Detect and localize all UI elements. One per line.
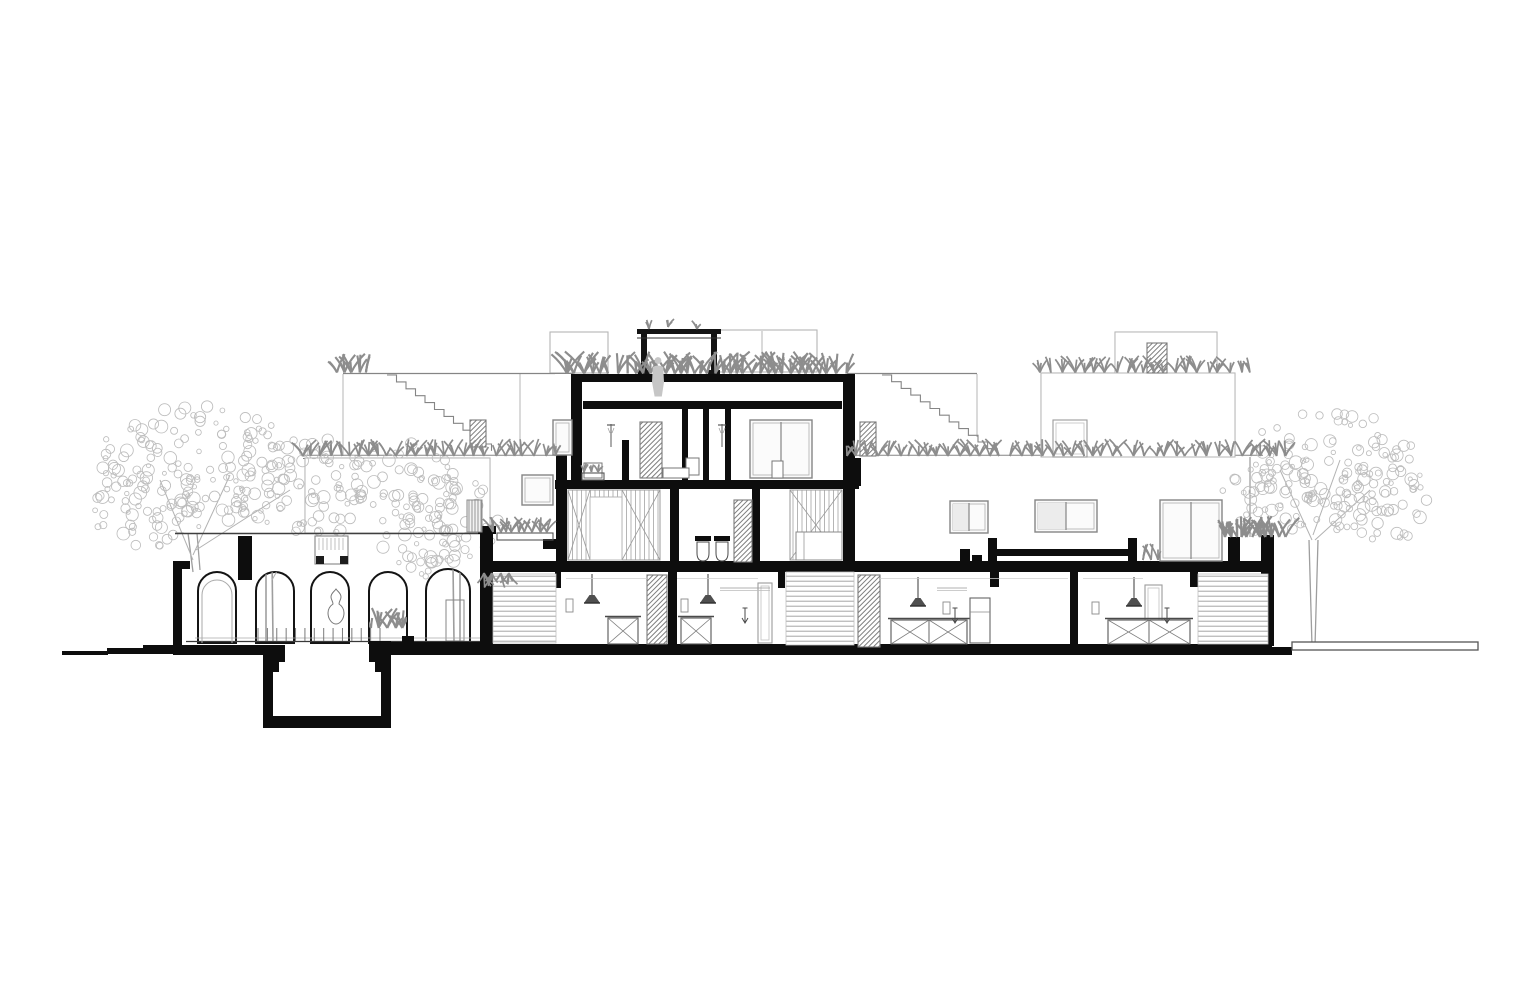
cabinet-fridge: [970, 598, 990, 643]
tree-trunk: [453, 565, 454, 641]
foliage-scribble: [264, 488, 274, 498]
foliage-scribble: [264, 431, 272, 439]
foliage-scribble: [244, 497, 248, 501]
ground-line: [143, 645, 176, 654]
foliage-scribble: [222, 514, 235, 527]
foliage-scribble: [121, 444, 134, 457]
foliage-scribble: [1348, 423, 1352, 427]
tree-trunk: [1309, 540, 1312, 646]
foliage-scribble: [196, 430, 202, 436]
foliage-scribble: [93, 508, 98, 513]
terrace-bench: [972, 555, 982, 565]
plant-leaf: [458, 446, 464, 456]
foliage-scribble: [1359, 420, 1367, 428]
arch-opening: [256, 572, 294, 643]
plant-row: [483, 517, 556, 532]
foliage-scribble: [1298, 410, 1307, 419]
foliage-scribble: [214, 421, 218, 425]
ground-line: [173, 645, 265, 655]
foliage-scribble: [1280, 513, 1291, 524]
foliage-scribble: [126, 509, 138, 521]
foliage-scribble: [1274, 425, 1281, 432]
foliage-scribble: [1289, 456, 1302, 469]
foliage-scribble: [168, 464, 176, 472]
foliage-scribble: [1259, 429, 1266, 436]
foliage-scribble: [1369, 414, 1378, 423]
foliage-scribble: [1331, 450, 1335, 454]
foliage-scribble: [148, 419, 158, 429]
plant-leaf: [760, 356, 761, 374]
sunken-patio-wall: [263, 662, 279, 672]
plant-leaf: [694, 323, 697, 329]
foliage-scribble: [155, 420, 168, 433]
plant-leaf: [380, 444, 387, 456]
hatched-door-panel: [734, 500, 752, 562]
foliage-scribble: [222, 451, 234, 463]
wardrobe-door-gap: [590, 497, 622, 560]
foliage-scribble: [1324, 435, 1336, 447]
ground-line: [62, 651, 108, 655]
ground-line: [385, 642, 482, 655]
foliage-scribble: [276, 463, 281, 468]
cut-wall: [714, 536, 730, 541]
foliage-scribble: [1413, 510, 1421, 518]
foliage-scribble: [176, 461, 182, 467]
cut-wall: [622, 440, 629, 481]
foliage-scribble: [174, 439, 183, 448]
foliage-scribble: [226, 473, 233, 480]
ground-line: [1266, 647, 1292, 655]
cut-wall: [173, 561, 190, 569]
foliage-scribble: [162, 471, 166, 475]
foliage-scribble: [257, 457, 267, 467]
foliage-scribble: [1383, 452, 1388, 457]
cut-wall: [990, 572, 999, 587]
foliage-scribble: [149, 533, 157, 541]
foliage-scribble: [1339, 501, 1350, 512]
foliage-scribble: [184, 463, 192, 471]
foliage-scribble: [1382, 504, 1394, 516]
cut-wall: [1228, 537, 1240, 572]
foliage-scribble: [249, 488, 261, 500]
foliage-scribble: [1340, 410, 1349, 419]
foliage-scribble: [197, 525, 201, 529]
foliage-scribble: [171, 427, 178, 434]
arch-opening: [198, 572, 236, 643]
cut-wall: [752, 489, 760, 562]
foliage-scribble: [1405, 455, 1413, 463]
foliage-scribble: [1358, 502, 1370, 514]
foliage-scribble: [1372, 443, 1380, 451]
foliage-scribble: [136, 424, 148, 436]
foliage-scribble: [160, 506, 166, 512]
terrace-bench: [960, 549, 970, 565]
foliage-scribble: [1387, 468, 1399, 480]
skylight-post: [316, 556, 324, 564]
foliage-scribble: [187, 492, 200, 505]
foliage-scribble: [102, 478, 112, 488]
cut-wall: [571, 374, 852, 382]
ground-plate-right: [1292, 642, 1478, 650]
foliage-scribble: [1418, 473, 1422, 477]
toilet: [716, 542, 728, 561]
architectural-section-drawing: [0, 0, 1536, 994]
terrace-bench: [1128, 538, 1137, 563]
building-mass: [305, 458, 490, 533]
foliage-scribble: [100, 511, 108, 519]
louver-screen: [1198, 574, 1268, 644]
foliage-scribble: [108, 497, 114, 503]
foliage-scribble: [262, 480, 274, 492]
plant-leaf: [425, 445, 427, 456]
foliage-scribble: [1366, 451, 1371, 456]
foliage-scribble: [207, 466, 214, 473]
foliage-scribble: [298, 484, 303, 489]
foliage-scribble: [147, 454, 155, 462]
foliage-scribble: [1316, 412, 1323, 419]
foliage-scribble: [240, 412, 250, 422]
foliage-scribble: [1390, 488, 1398, 496]
foliage-scribble: [1380, 486, 1391, 497]
plant-leaf: [331, 442, 338, 456]
foliage-scribble: [237, 469, 249, 481]
foliage-scribble: [1405, 473, 1418, 486]
plant-leaf: [1285, 441, 1286, 456]
foliage-scribble: [1398, 500, 1407, 509]
louvered-window: [467, 500, 482, 532]
building-mass: [1041, 373, 1235, 457]
cut-wall: [778, 572, 785, 588]
foliage-scribble: [1391, 527, 1403, 539]
foliage-scribble: [267, 461, 275, 469]
window-pane-tint: [1038, 503, 1066, 529]
foliage-scribble: [211, 477, 216, 482]
plant-leaf: [1022, 445, 1026, 456]
plant-row: [292, 439, 561, 456]
plant-leaf: [697, 324, 701, 329]
foliage-scribble: [201, 401, 212, 412]
foliage-scribble: [202, 495, 209, 502]
bath-fixture: [772, 461, 783, 478]
cut-wall: [480, 561, 1272, 572]
foliage-scribble: [1370, 467, 1383, 480]
foliage-scribble: [1345, 459, 1352, 466]
foliage-scribble: [224, 486, 230, 492]
foliage-scribble: [1281, 461, 1290, 470]
foliage-scribble: [159, 404, 171, 416]
foliage-scribble: [1329, 438, 1336, 445]
figure-body: [652, 366, 664, 397]
ground-line: [107, 648, 145, 654]
sunken-patio-wall: [263, 672, 273, 718]
foliage-scribble: [1374, 530, 1381, 537]
foliage-scribble: [226, 462, 236, 472]
foliage-scribble: [1392, 454, 1399, 461]
foliage-scribble: [195, 412, 206, 423]
foliage-scribble: [1332, 409, 1343, 420]
foliage-scribble: [297, 522, 301, 526]
plant-leaf: [369, 442, 370, 456]
plant-leaf: [1117, 361, 1118, 372]
pergola-beam: [637, 329, 721, 334]
sunken-patio-wall: [375, 662, 391, 672]
foliage-scribble: [197, 449, 202, 454]
plant-row: [551, 352, 854, 374]
foliage-scribble: [1334, 417, 1342, 425]
cut-wall: [555, 480, 859, 489]
plant-leaf: [351, 362, 352, 372]
figure-head: [655, 357, 662, 364]
foliage-scribble: [129, 420, 141, 432]
foliage-scribble: [1356, 514, 1367, 525]
foliage-scribble: [143, 477, 150, 484]
cut-wall: [703, 408, 709, 481]
plant-leaf: [1153, 364, 1154, 372]
cut-wall: [695, 536, 711, 541]
foliage-scribble: [253, 516, 257, 520]
bath-fixture: [663, 468, 689, 478]
cut-wall: [480, 528, 493, 650]
foliage-scribble: [143, 507, 151, 515]
foliage-scribble: [1289, 470, 1301, 482]
foliage-scribble: [121, 504, 130, 513]
foliage-scribble: [1369, 480, 1377, 488]
foliage-scribble: [282, 496, 292, 506]
plant-leaf: [1285, 444, 1294, 456]
hatched-door-panel: [640, 422, 662, 478]
foliage-scribble: [234, 479, 238, 483]
foliage-scribble: [164, 452, 177, 465]
sunken-patio-wall: [263, 716, 391, 728]
hatched-door-panel: [647, 575, 667, 644]
foliage-scribble: [97, 462, 109, 474]
planter-box: [497, 533, 553, 540]
arch-opening: [426, 569, 470, 643]
cut-wall: [173, 569, 182, 650]
foliage-scribble: [1377, 435, 1387, 445]
terrace-bench: [988, 538, 997, 563]
foliage-scribble: [104, 437, 109, 442]
foliage-scribble: [265, 520, 269, 524]
plant-leaf: [329, 362, 337, 373]
foliage-scribble: [268, 423, 274, 429]
foliage-scribble: [1325, 457, 1334, 466]
terrace-bench: [997, 549, 1128, 556]
plant-leaf: [1223, 364, 1230, 373]
foliage-scribble: [1372, 518, 1383, 529]
foliage-scribble: [1357, 446, 1362, 451]
hatched-door-panel: [858, 575, 880, 647]
cut-wall: [583, 401, 842, 409]
cut-wall: [668, 572, 677, 645]
foliage-scribble: [152, 521, 162, 531]
plant-leaf: [617, 353, 618, 373]
cut-wall: [725, 408, 731, 481]
plant-row: [328, 354, 370, 373]
plant-leaf: [360, 355, 361, 373]
terrace-stair: [882, 375, 997, 455]
plant-leaf: [649, 320, 652, 329]
plant-leaf: [1067, 356, 1076, 372]
tree-branch: [1280, 470, 1312, 540]
plant-leaf: [493, 445, 497, 456]
cut-wall: [670, 489, 679, 562]
louver-screen: [493, 574, 556, 643]
foliage-scribble: [131, 540, 141, 550]
foliage-scribble: [1369, 491, 1376, 498]
foliage-scribble: [209, 491, 220, 502]
foliage-scribble: [125, 491, 129, 495]
arch-opening: [369, 572, 407, 643]
foliage-scribble: [278, 474, 288, 484]
foliage-scribble: [253, 438, 258, 443]
plant-leaf: [1242, 363, 1243, 372]
plant-leaf: [667, 320, 668, 327]
foliage-scribble: [1351, 523, 1358, 530]
foliage-scribble: [1273, 464, 1282, 473]
window-glass: [522, 475, 553, 505]
foliage-scribble: [172, 517, 180, 525]
bed: [796, 532, 842, 560]
cut-wall: [238, 536, 252, 580]
ground-line: [402, 636, 414, 643]
plant-leaf: [1235, 441, 1242, 456]
foliage-scribble: [253, 415, 262, 424]
toilet: [697, 542, 709, 561]
plant-leaf: [484, 447, 489, 456]
foliage-scribble: [1375, 470, 1381, 476]
sunken-patio-wall: [381, 672, 391, 718]
foliage-scribble: [1409, 479, 1419, 489]
foliage-scribble: [1381, 489, 1389, 497]
skylight-post: [340, 556, 348, 564]
foliage-scribble: [1421, 495, 1431, 505]
plant-leaf: [1269, 440, 1270, 456]
cut-wall: [556, 455, 567, 572]
plant-leaf: [836, 354, 837, 374]
foliage-scribble: [133, 466, 141, 474]
cut-wall: [1190, 572, 1198, 587]
foliage-scribble: [191, 413, 197, 419]
plant-leaf: [435, 440, 436, 457]
foliage-scribble: [285, 463, 295, 473]
sunken-patio-wall: [369, 641, 391, 662]
foliage-scribble: [220, 408, 225, 413]
foliage-scribble: [112, 482, 121, 491]
foliage-scribble: [181, 435, 189, 443]
foliage-scribble: [219, 442, 226, 449]
tree-branch: [1315, 490, 1370, 540]
foliage-scribble: [195, 502, 204, 511]
foliage-scribble: [217, 430, 225, 438]
plant-leaf: [715, 352, 716, 374]
foliage-scribble: [1344, 524, 1350, 530]
tree-trunk: [1315, 540, 1318, 646]
cut-wall: [1070, 572, 1078, 645]
plant-leaf: [555, 446, 556, 456]
foliage-scribble: [1356, 469, 1361, 474]
plant-leaf: [668, 319, 674, 327]
architectural-section-page: [0, 0, 1536, 994]
sunken-patio-wall: [263, 645, 285, 662]
louver-screen: [786, 572, 854, 645]
foliage-scribble: [1357, 528, 1367, 538]
foliage-scribble: [1369, 536, 1375, 542]
window-pane-tint: [953, 504, 969, 530]
